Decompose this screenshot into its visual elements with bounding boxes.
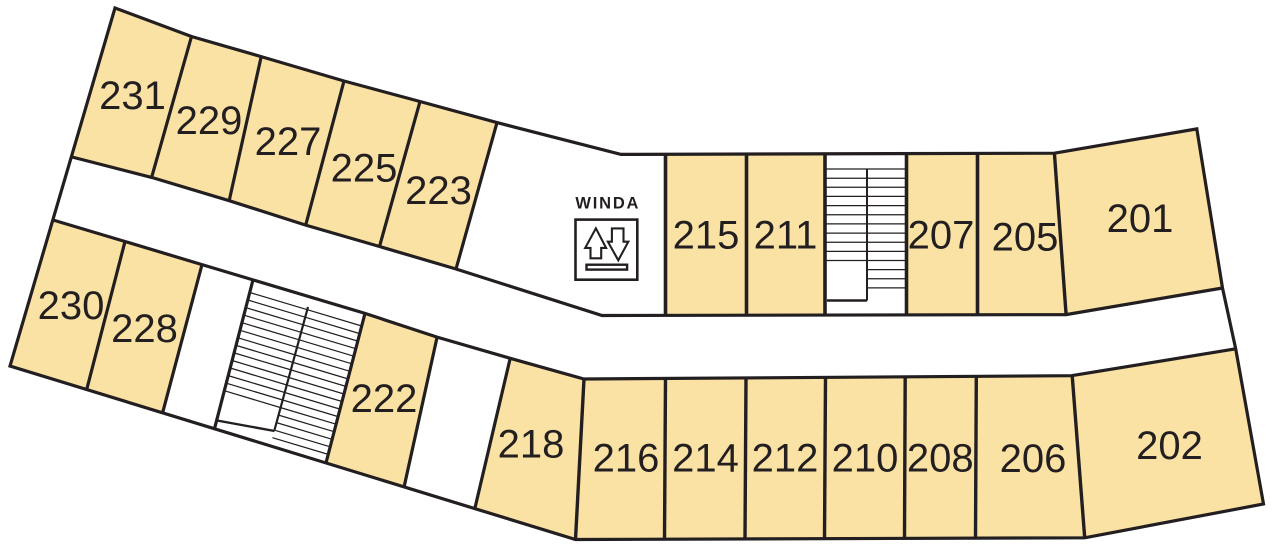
svg-text:223: 223 [405,169,472,213]
svg-text:218: 218 [498,423,565,467]
svg-text:228: 228 [111,307,178,351]
svg-text:210: 210 [832,437,899,481]
svg-text:229: 229 [176,99,243,143]
svg-text:206: 206 [1000,437,1067,481]
svg-text:230: 230 [38,284,105,328]
svg-text:212: 212 [752,437,819,481]
svg-text:202: 202 [1136,424,1203,468]
svg-text:WINDA: WINDA [575,195,640,213]
svg-text:207: 207 [908,214,975,258]
svg-text:227: 227 [255,120,322,164]
svg-text:215: 215 [673,214,740,258]
svg-text:222: 222 [351,377,418,421]
svg-text:201: 201 [1107,197,1174,241]
svg-text:208: 208 [907,437,974,481]
svg-text:214: 214 [672,437,739,481]
svg-text:231: 231 [99,74,166,118]
svg-text:211: 211 [754,214,818,258]
svg-text:205: 205 [992,216,1059,260]
svg-text:216: 216 [593,437,660,481]
svg-text:225: 225 [331,147,398,191]
